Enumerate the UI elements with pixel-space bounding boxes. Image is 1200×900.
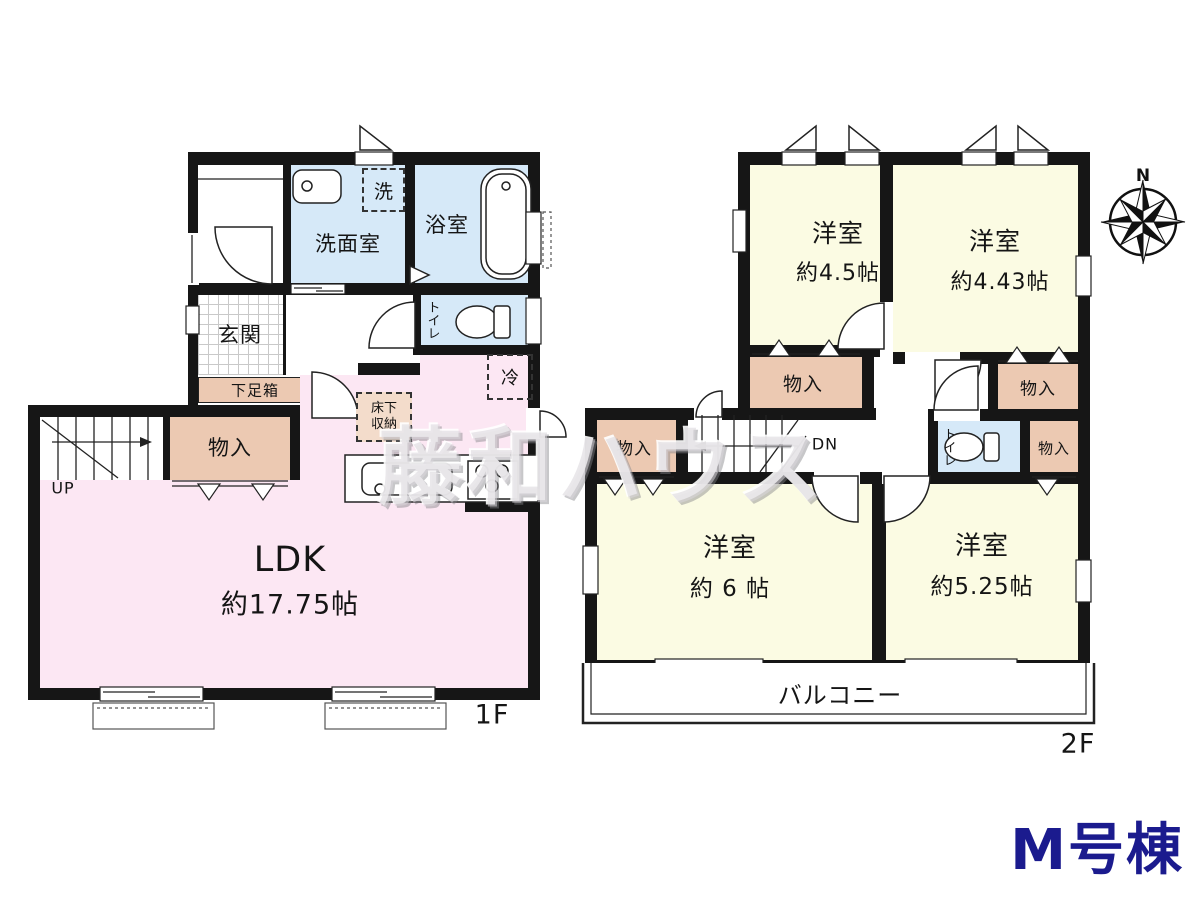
door-arc xyxy=(369,302,415,348)
bed3-size: 約 6 帖 xyxy=(690,569,770,603)
terrace-step xyxy=(325,703,446,729)
compass-icon xyxy=(1101,180,1185,264)
storage-2f-b-label: 物入 xyxy=(1020,375,1056,400)
fridge-label: 冷 xyxy=(501,364,519,390)
door-arc xyxy=(935,360,981,406)
floor-plan-canvas: 洗 冷 床下収納 洗面室 浴室 玄関 トイレ 下足箱 物入 LDK 約17.75… xyxy=(0,0,1200,900)
laundry-space: 洗 xyxy=(362,168,405,212)
bed1-size: 約4.5帖 xyxy=(796,255,880,287)
watermark: 藤和ハウス xyxy=(378,398,828,523)
toilet-1f-label: トイレ xyxy=(423,301,442,340)
compass-north-label: N xyxy=(1136,166,1150,186)
bed2-name: 洋室 xyxy=(969,222,1021,258)
bed4-size: 約5.25帖 xyxy=(930,567,1033,601)
building-name-label: M号棟 xyxy=(1010,805,1184,886)
door-arc xyxy=(934,366,978,410)
bed1-name: 洋室 xyxy=(812,214,864,250)
entrance-label: 玄関 xyxy=(218,319,262,349)
toilet-2f-label: トイレ xyxy=(939,428,958,467)
storage-2f-a-label: 物入 xyxy=(783,370,823,397)
door-arc xyxy=(215,227,272,284)
bathroom-label: 浴室 xyxy=(425,209,469,239)
ldk-name: LDK xyxy=(254,540,326,580)
floor2-label: 2F xyxy=(1061,729,1096,760)
stairs-up-icon xyxy=(42,417,152,480)
shoe-box-label: 下足箱 xyxy=(231,380,279,401)
floor1-label: 1F xyxy=(475,700,510,731)
storage-2f-d-label: 物入 xyxy=(1038,438,1070,459)
bed3-name: 洋室 xyxy=(703,528,757,565)
laundry-label: 洗 xyxy=(374,177,393,204)
bed2-size: 約4.43帖 xyxy=(951,264,1050,296)
fridge-space: 冷 xyxy=(487,354,533,400)
room-bed2 xyxy=(893,165,1078,352)
storage-1f-label: 物入 xyxy=(208,432,252,462)
ldk-size: 約17.75帖 xyxy=(221,583,359,622)
washroom-label: 洗面室 xyxy=(315,228,381,258)
balcony-label: バルコニー xyxy=(778,676,903,711)
stairs-up-label: UP xyxy=(51,479,74,498)
bed4-name: 洋室 xyxy=(955,526,1009,563)
terrace-step xyxy=(93,703,214,729)
